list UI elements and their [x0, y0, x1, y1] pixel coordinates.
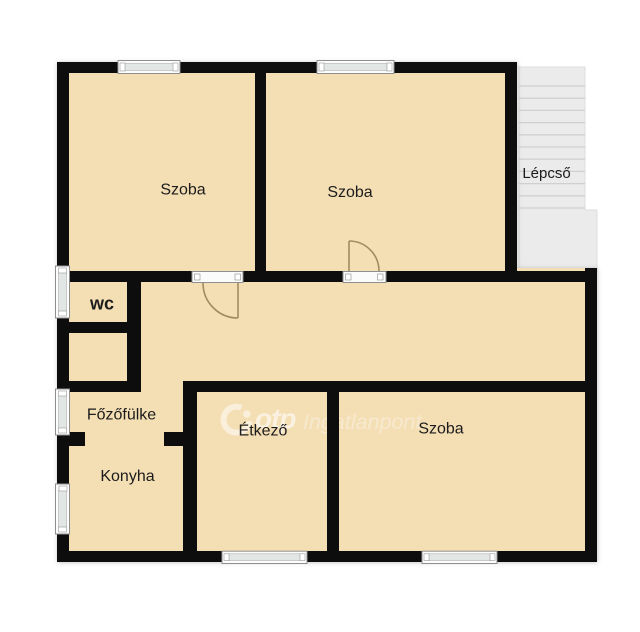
svg-text:wc: wc: [89, 294, 114, 314]
svg-text:Szoba: Szoba: [327, 184, 372, 201]
svg-text:Étkező: Étkező: [239, 421, 288, 440]
svg-text:Lépcső: Lépcső: [522, 165, 570, 182]
svg-text:Szoba: Szoba: [160, 182, 205, 199]
svg-text:Szoba: Szoba: [418, 421, 463, 438]
svg-text:Főzőfülke: Főzőfülke: [87, 407, 156, 424]
svg-text:Ingatlanpont: Ingatlanpont: [303, 410, 422, 434]
svg-text:Konyha: Konyha: [100, 468, 154, 485]
